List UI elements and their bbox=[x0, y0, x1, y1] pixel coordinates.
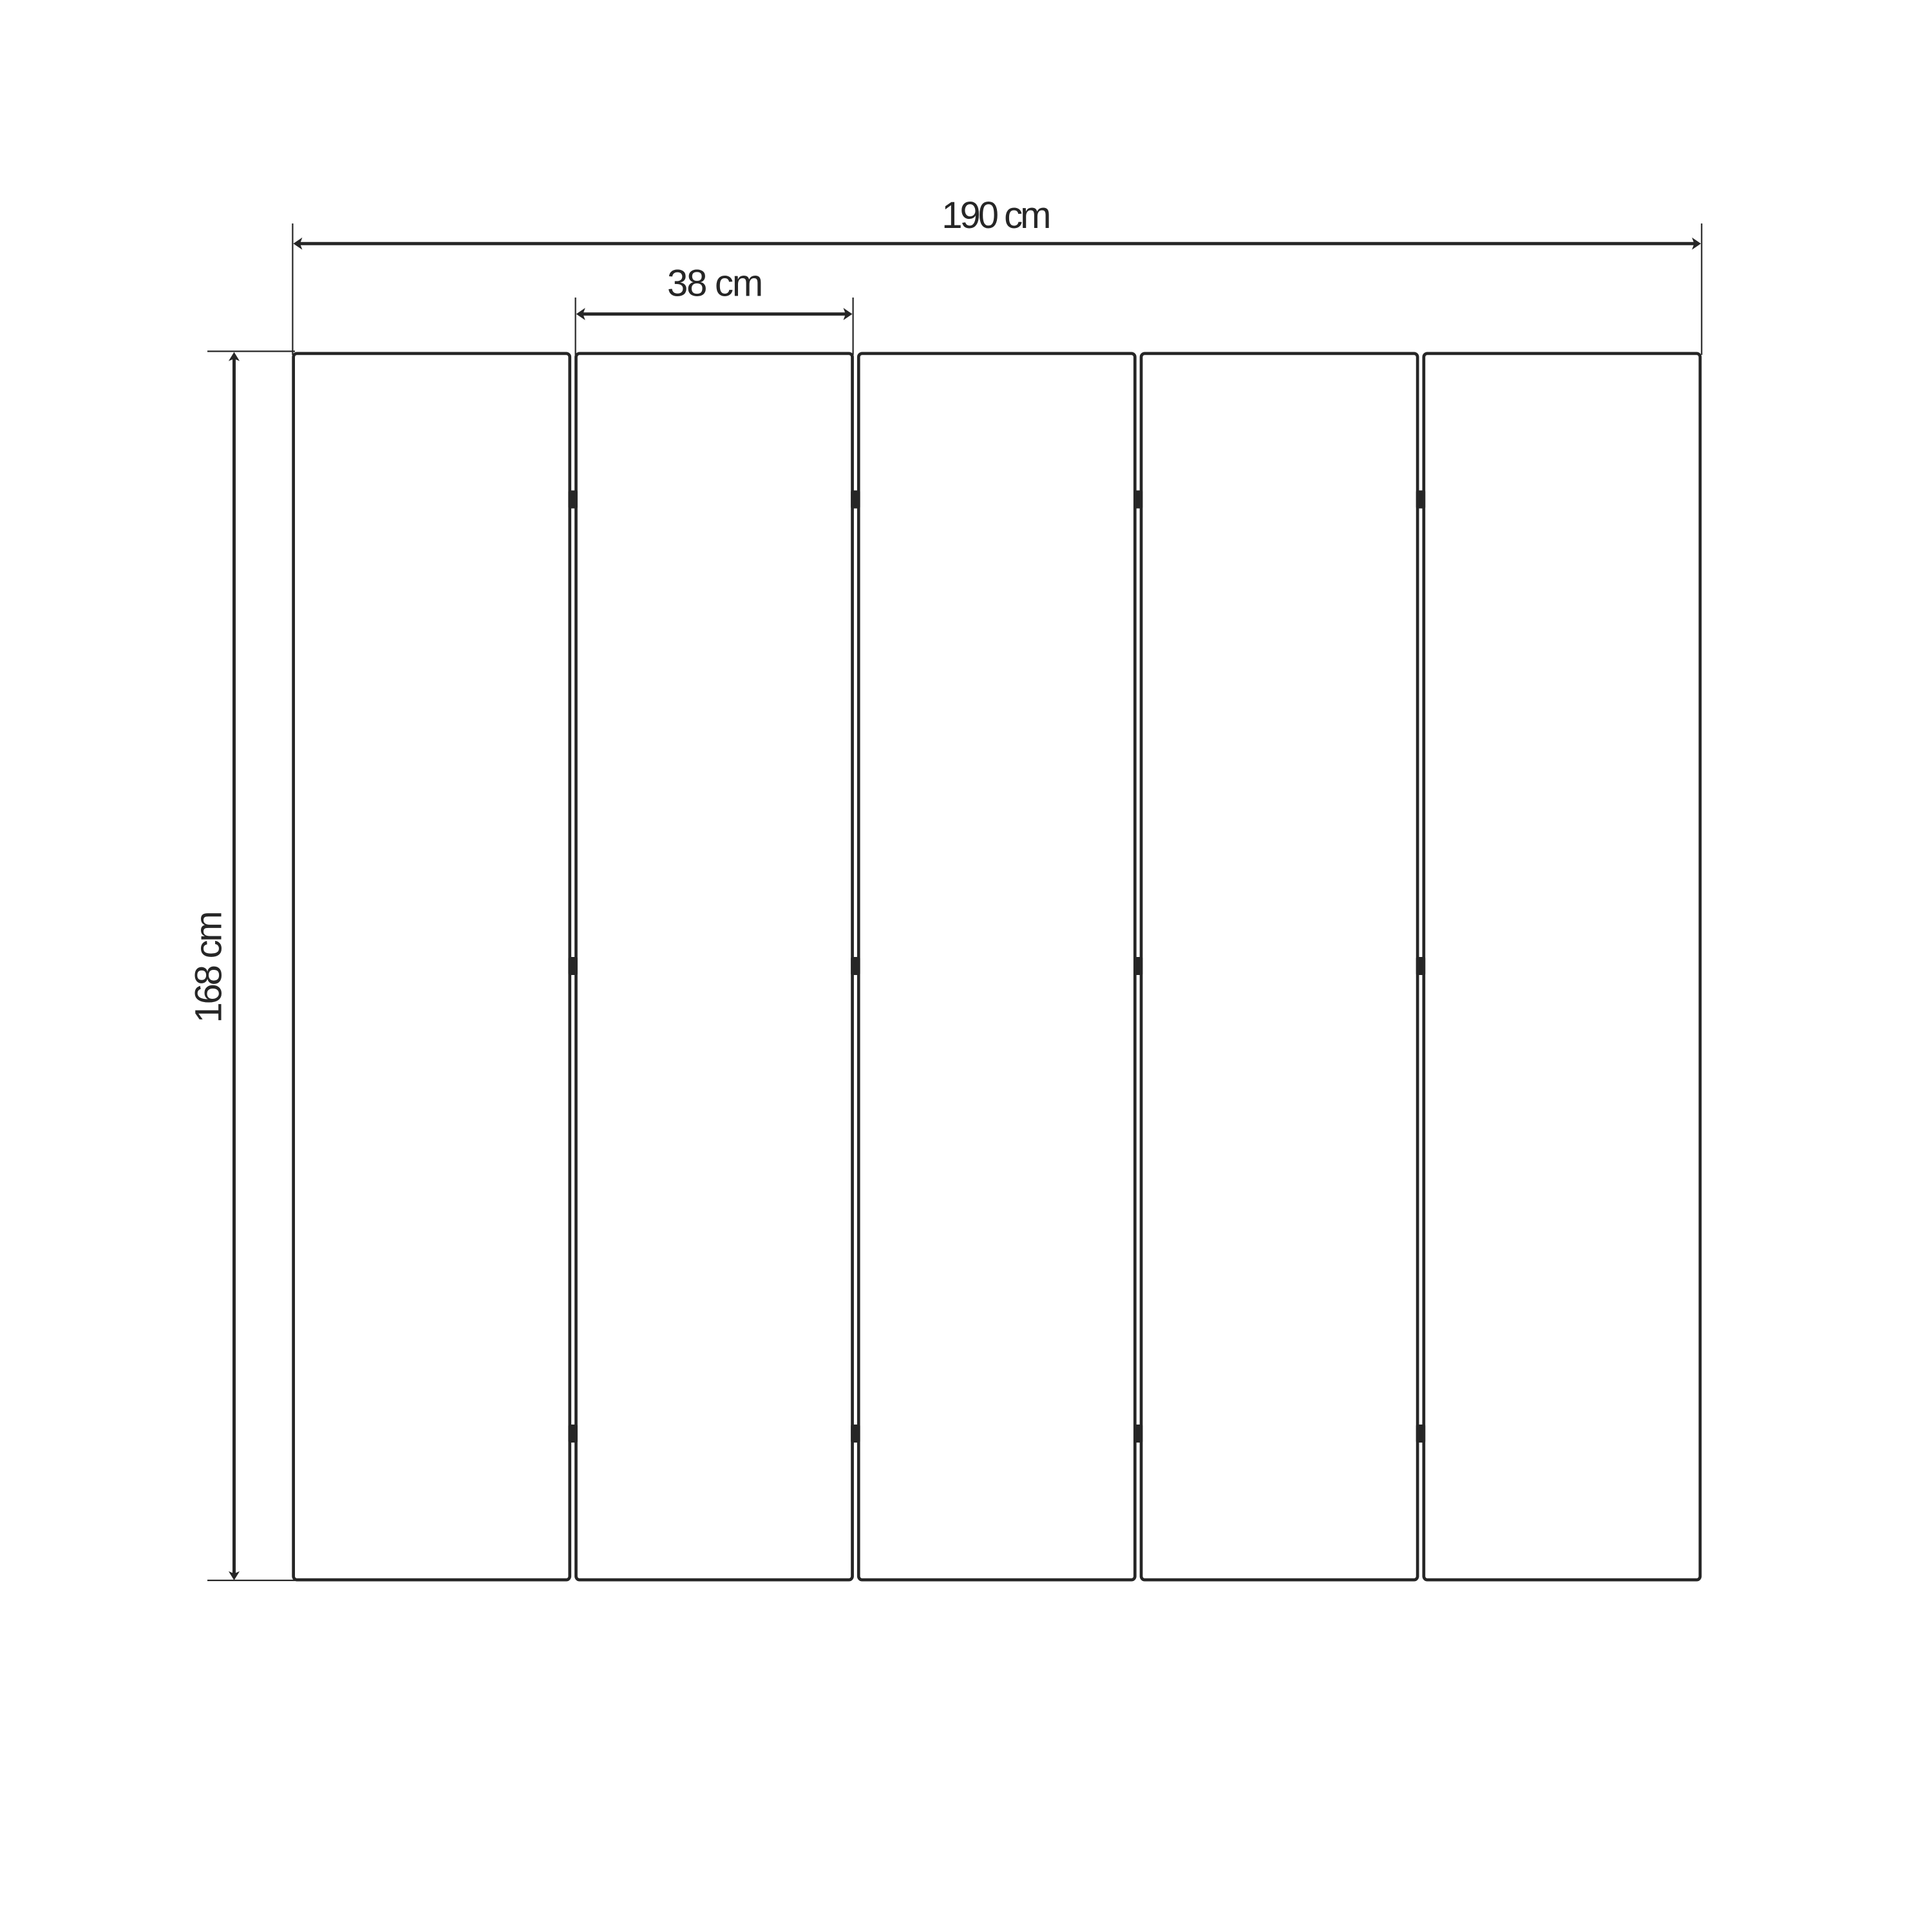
svg-text:190 cm: 190 cm bbox=[942, 194, 1049, 236]
svg-text:38 cm: 38 cm bbox=[667, 263, 762, 305]
svg-text:168 cm: 168 cm bbox=[188, 913, 230, 1023]
